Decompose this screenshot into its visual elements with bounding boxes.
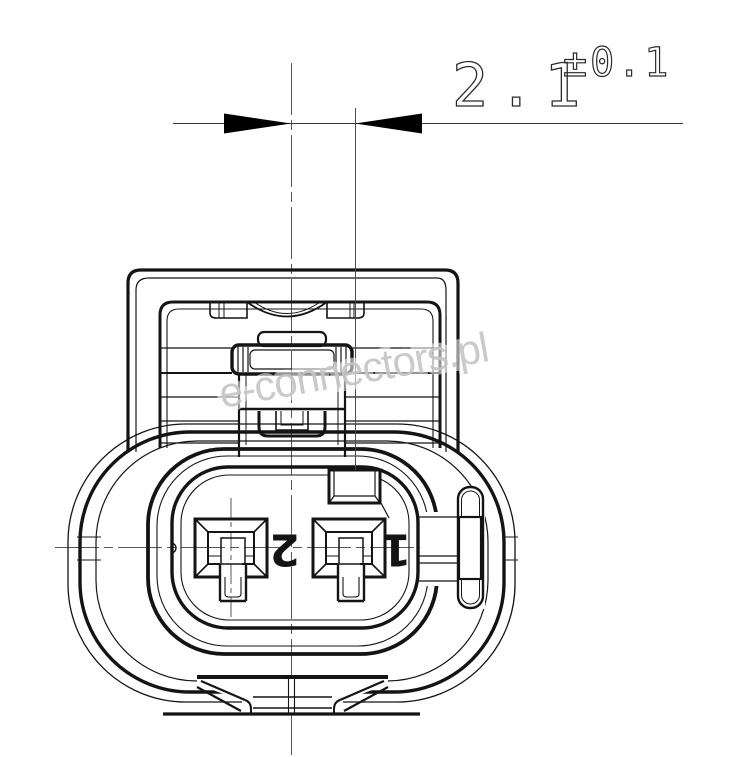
- pin1-contact-slot: [339, 538, 363, 564]
- connector-technical-drawing: 2 1 2.1 ±0.1 e-connectors.pl e-connector…: [0, 0, 740, 757]
- watermark-text: e-connectors.pl: [215, 323, 491, 417]
- keying-rib-slot: [459, 517, 481, 579]
- pin1-stem: [338, 564, 364, 601]
- dimension-arrow-right: [355, 114, 422, 134]
- watermark: e-connectors.pl e-connectors.pl: [215, 323, 491, 417]
- pin2-contact-slot: [221, 538, 245, 564]
- pin2-stem: [220, 564, 246, 601]
- top-cutout-left: [210, 302, 247, 318]
- keying-notch: [329, 470, 389, 518]
- dimension-arrow-left: [224, 114, 291, 134]
- top-cutout-right: [327, 302, 364, 318]
- keying-rib: [418, 486, 485, 609]
- pin1-label: 1: [381, 524, 412, 575]
- drawing-canvas: 2 1 2.1 ±0.1 e-connectors.pl e-connector…: [0, 0, 740, 757]
- dimension-tolerance-text: ±0.1: [563, 40, 671, 86]
- pin2-label: 2: [269, 524, 300, 575]
- pin2-stem-inner: [225, 577, 241, 597]
- pin1-stem-inner: [343, 577, 359, 597]
- mounting-foot: [163, 675, 420, 714]
- pin1-cavity: [313, 519, 385, 601]
